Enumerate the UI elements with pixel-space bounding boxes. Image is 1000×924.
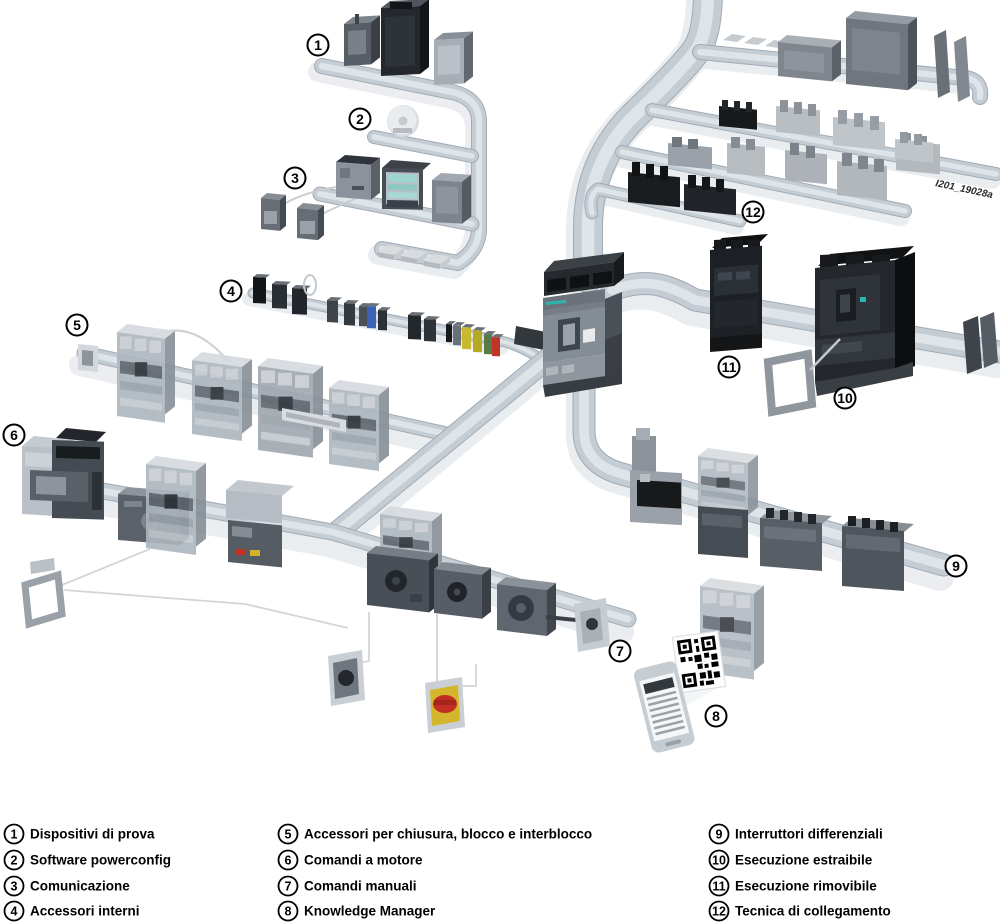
svg-text:5: 5 [285, 828, 292, 842]
svg-text:4: 4 [11, 905, 18, 919]
svg-text:9: 9 [952, 558, 960, 574]
svg-text:Tecnica di collegamento: Tecnica di collegamento [735, 904, 891, 919]
svg-text:11: 11 [712, 880, 725, 894]
svg-text:Interruttori differenziali: Interruttori differenziali [735, 827, 883, 842]
svg-text:2: 2 [11, 854, 18, 868]
svg-text:1: 1 [11, 828, 18, 842]
svg-text:Comunicazione: Comunicazione [30, 879, 130, 894]
svg-text:7: 7 [285, 880, 292, 894]
svg-text:8: 8 [285, 905, 292, 919]
svg-text:Accessori per chiusura, blocco: Accessori per chiusura, blocco e interbl… [304, 827, 592, 842]
svg-text:3: 3 [11, 880, 18, 894]
svg-text:12: 12 [712, 905, 726, 919]
svg-text:10: 10 [712, 854, 726, 868]
svg-text:Comandi manuali: Comandi manuali [304, 879, 417, 894]
svg-text:4: 4 [227, 283, 235, 299]
svg-text:6: 6 [285, 854, 292, 868]
svg-text:Software powerconfig: Software powerconfig [30, 853, 171, 868]
svg-text:Accessori interni: Accessori interni [30, 904, 140, 919]
svg-text:9: 9 [716, 828, 723, 842]
svg-text:12: 12 [745, 204, 761, 220]
svg-text:Comandi a motore: Comandi a motore [304, 853, 423, 868]
svg-text:6: 6 [10, 427, 18, 443]
svg-text:8: 8 [712, 708, 720, 724]
svg-text:Esecuzione estraibile: Esecuzione estraibile [735, 853, 873, 868]
svg-text:Knowledge Manager: Knowledge Manager [304, 904, 436, 919]
svg-text:3: 3 [291, 170, 299, 186]
svg-text:11: 11 [722, 359, 737, 375]
svg-text:5: 5 [73, 317, 81, 333]
svg-text:2: 2 [356, 111, 364, 127]
svg-text:Esecuzione rimovibile: Esecuzione rimovibile [735, 879, 877, 894]
svg-text:10: 10 [837, 390, 853, 406]
svg-text:7: 7 [616, 643, 624, 659]
svg-text:1: 1 [314, 37, 322, 53]
svg-text:Dispositivi di prova: Dispositivi di prova [30, 827, 155, 842]
